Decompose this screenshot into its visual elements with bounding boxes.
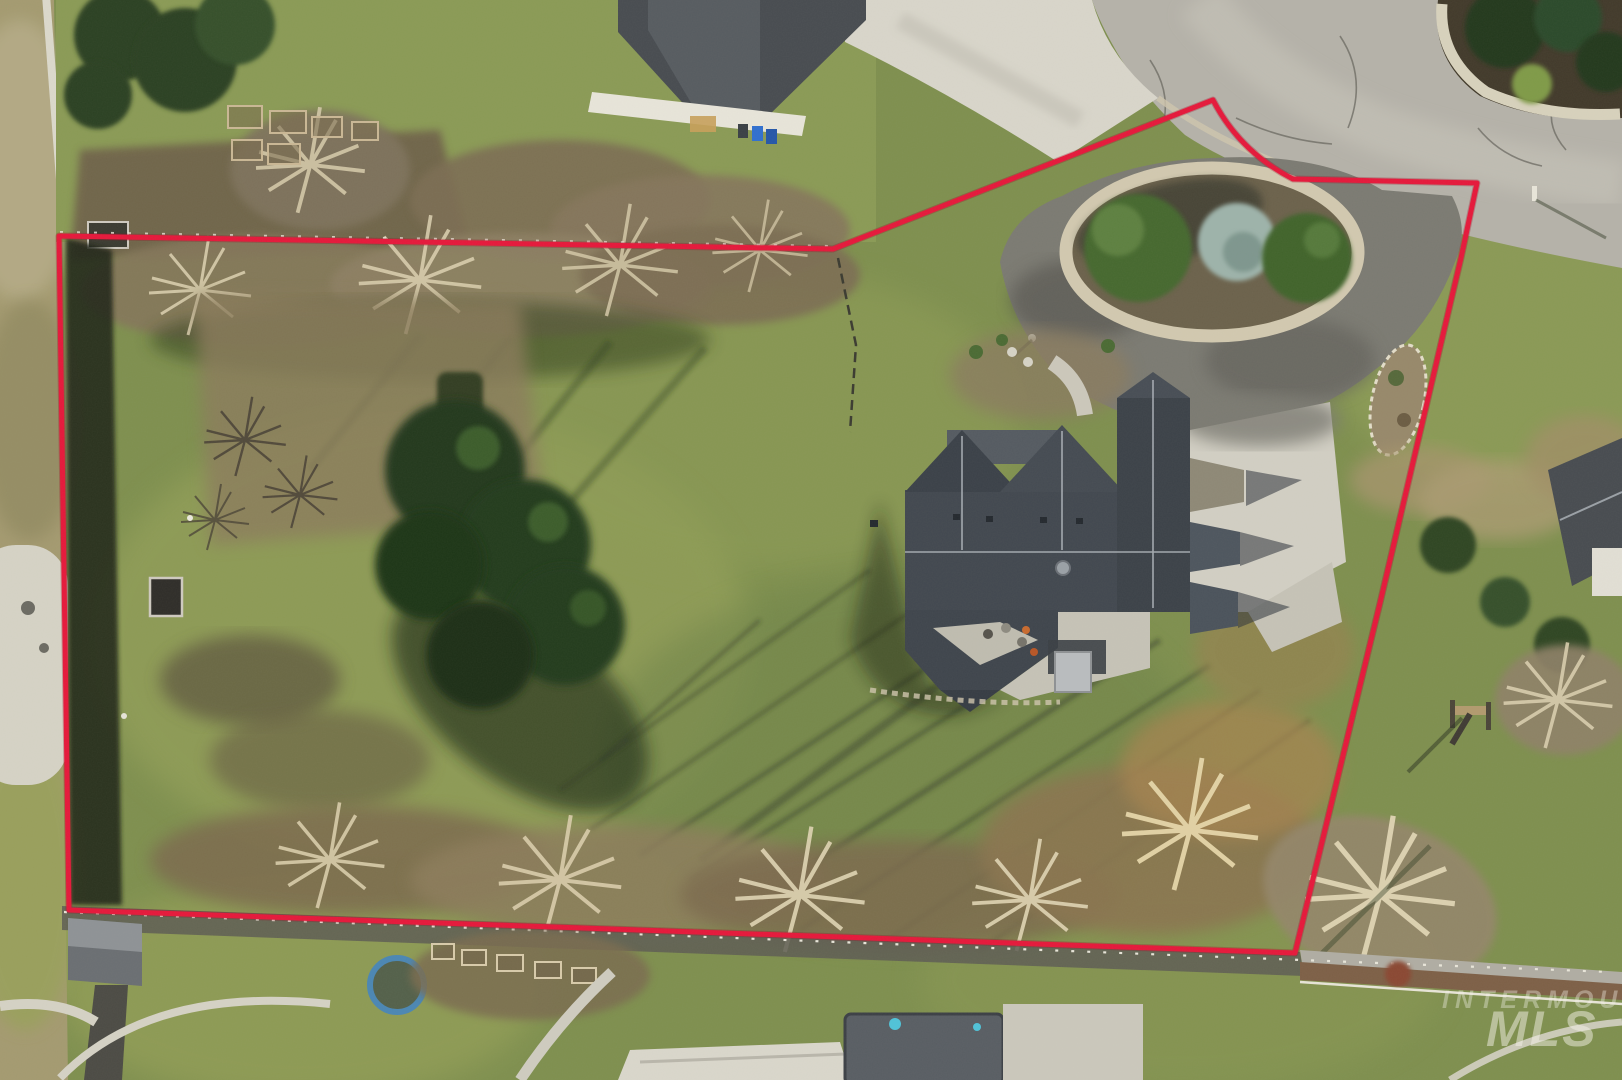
photo-grain-overlay	[0, 0, 1622, 1080]
aerial-photo-canvas: INTERMOUNTAIN MLS	[0, 0, 1622, 1080]
aerial-photo: INTERMOUNTAIN MLS	[0, 0, 1622, 1080]
